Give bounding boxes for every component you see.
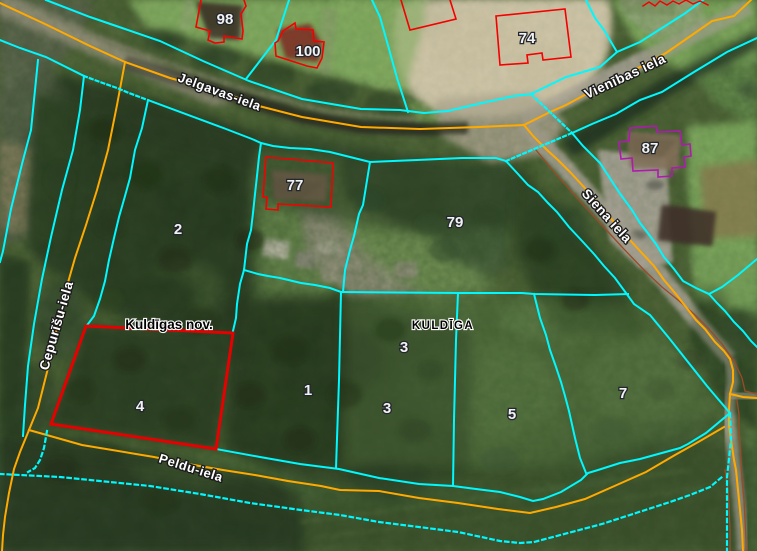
svg-text:3: 3 [400, 339, 408, 356]
svg-text:77: 77 [287, 177, 304, 194]
svg-text:4: 4 [136, 398, 145, 415]
svg-text:79: 79 [447, 214, 464, 231]
svg-text:1: 1 [304, 382, 312, 399]
svg-text:3: 3 [383, 400, 391, 417]
svg-text:Kuldīgas nov.: Kuldīgas nov. [125, 317, 213, 332]
svg-text:2: 2 [174, 221, 182, 238]
svg-text:87: 87 [642, 140, 659, 157]
svg-text:98: 98 [217, 11, 234, 28]
svg-text:KULDĪGA: KULDĪGA [412, 320, 474, 332]
svg-text:100: 100 [295, 43, 320, 60]
svg-text:74: 74 [519, 30, 536, 47]
svg-text:7: 7 [619, 385, 627, 402]
svg-text:5: 5 [508, 406, 516, 423]
